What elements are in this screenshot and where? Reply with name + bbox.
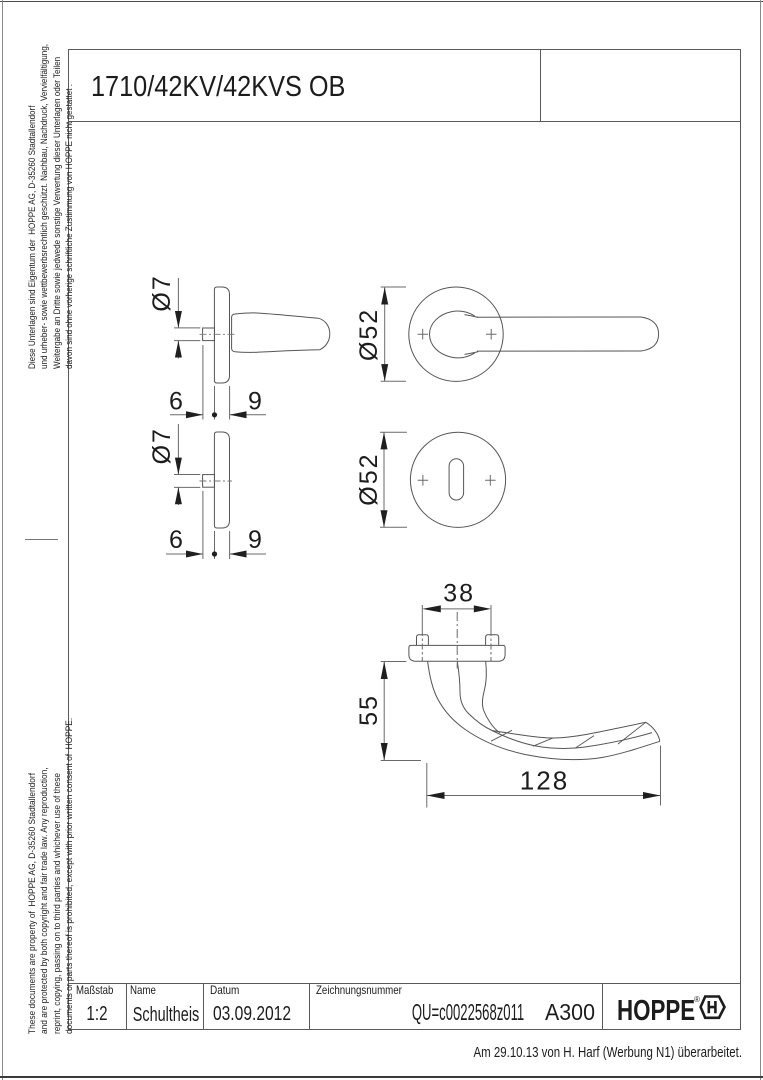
svg-text:6: 6 [169,388,185,416]
svg-text:9: 9 [248,388,264,416]
svg-text:38: 38 [443,580,475,608]
svg-text:6: 6 [169,526,185,554]
svg-text:55: 55 [355,694,383,726]
svg-text:Ø52: Ø52 [355,452,383,505]
svg-text:128: 128 [520,766,569,796]
svg-text:9: 9 [248,526,264,554]
svg-text:Ø7: Ø7 [148,427,176,464]
svg-text:Ø7: Ø7 [148,274,176,311]
svg-text:Ø52: Ø52 [355,308,383,361]
